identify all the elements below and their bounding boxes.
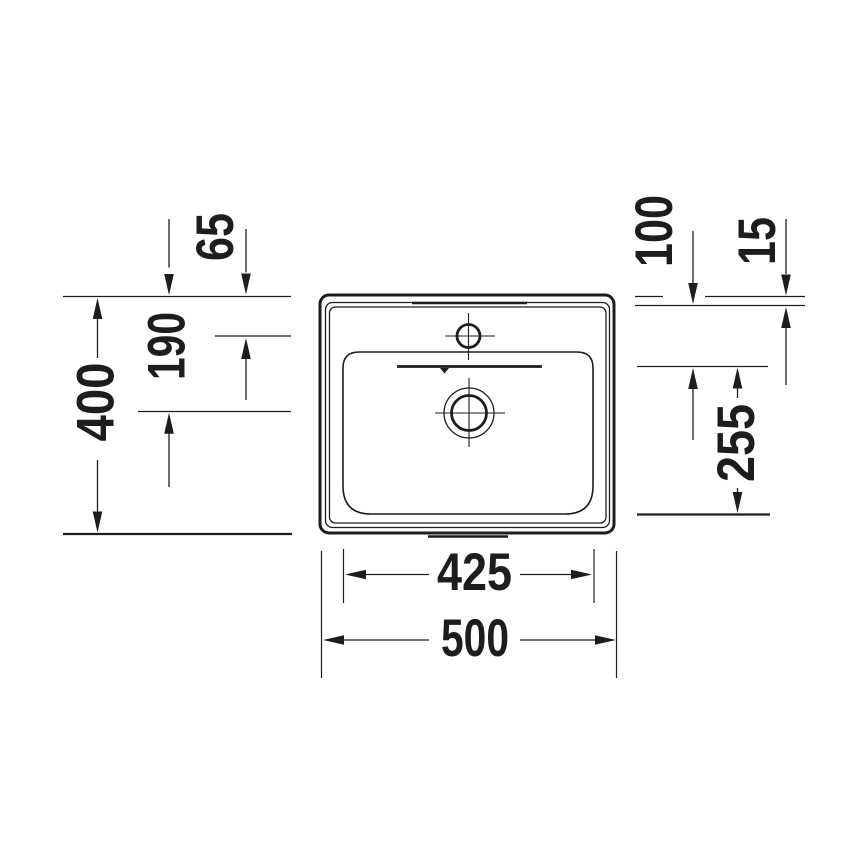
arrow-right-icon <box>571 570 592 580</box>
arrow-up-icon <box>733 368 743 389</box>
dim-label-500: 500 <box>441 609 509 668</box>
drawing-canvas: 65 190 400 100 15 255 <box>0 0 868 868</box>
arrow-down-icon <box>781 275 791 296</box>
dim-label-65: 65 <box>186 213 245 261</box>
dim-label-400: 400 <box>67 363 126 442</box>
arrow-left-icon <box>345 570 366 580</box>
arrow-up-icon <box>781 307 791 328</box>
dim-label-425: 425 <box>437 543 512 602</box>
dimension-overall-width: 500 <box>323 609 616 668</box>
arrow-up-icon <box>164 413 174 434</box>
dim-label-190: 190 <box>138 312 197 380</box>
arrow-right-icon <box>595 635 616 645</box>
basin-rim-line-inner <box>330 307 607 523</box>
arrow-up-icon <box>688 368 698 389</box>
technical-drawing: 65 190 400 100 15 255 <box>0 0 868 868</box>
dimension-rim-width: 15 <box>728 217 791 385</box>
faucet-hole <box>445 313 495 360</box>
overflow-tick-icon <box>440 368 449 374</box>
basin-outer-edge <box>320 295 614 533</box>
dim-label-255: 255 <box>707 404 766 482</box>
dimension-ledge-to-overflow: 100 <box>625 195 698 440</box>
drain-hole <box>435 378 505 447</box>
arrow-down-icon <box>688 283 698 304</box>
dimension-overflow-to-bowl-front: 255 <box>707 368 766 514</box>
arrow-down-icon <box>93 512 103 533</box>
basin-top-view <box>320 295 614 537</box>
bowl-outline <box>343 352 593 514</box>
dimension-bowl-width: 425 <box>345 543 592 602</box>
dimension-overall-depth: 400 <box>67 298 126 533</box>
dim-label-100: 100 <box>625 195 684 267</box>
arrow-down-icon <box>241 274 251 295</box>
arrow-down-icon <box>733 492 743 513</box>
arrow-down-icon <box>164 274 174 295</box>
arrow-up-icon <box>93 298 103 319</box>
dim-label-15: 15 <box>728 217 787 265</box>
arrow-left-icon <box>323 635 344 645</box>
arrow-up-icon <box>241 338 251 359</box>
